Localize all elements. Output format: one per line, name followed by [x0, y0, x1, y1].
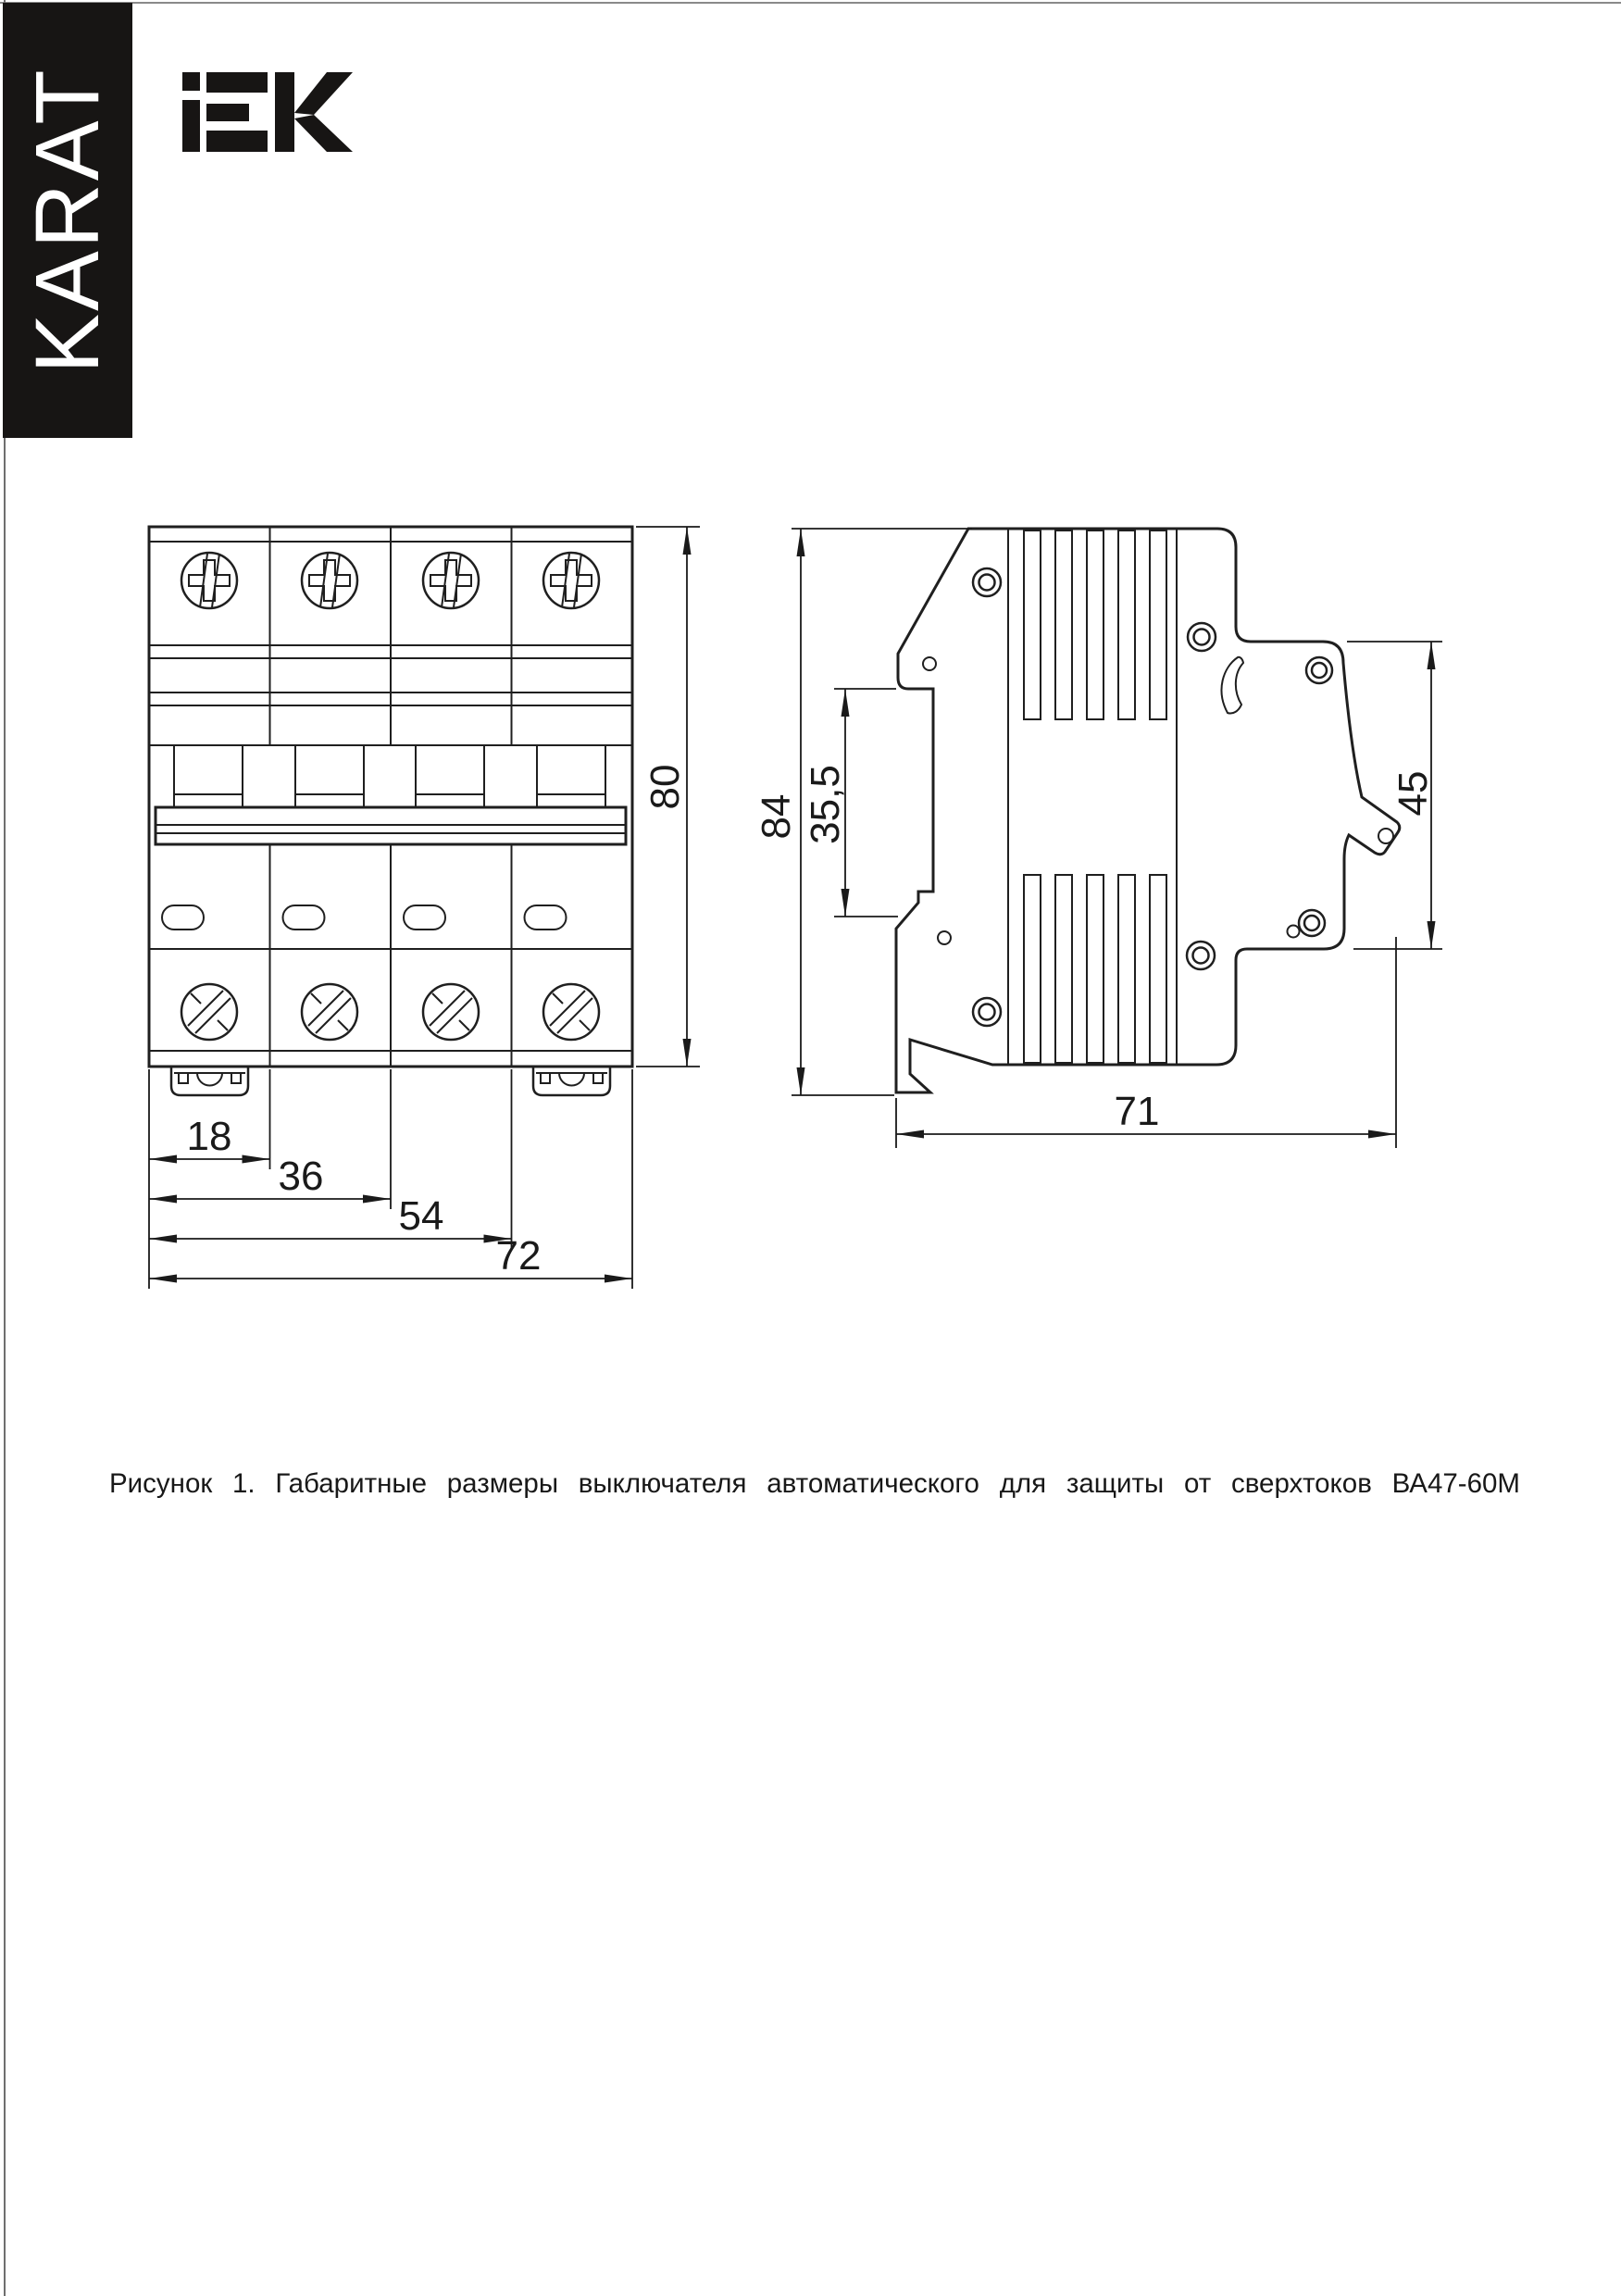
- screw-phillips: [302, 553, 357, 608]
- rivet-bosses: [973, 568, 1332, 1026]
- screw-phillips: [181, 553, 237, 608]
- din-clip: [533, 1067, 610, 1095]
- dim-label-36: 36: [279, 1154, 324, 1199]
- toggle-handles: [174, 745, 605, 807]
- screw-combi: [423, 984, 479, 1040]
- screw-combi: [302, 984, 357, 1040]
- front-module-dividers: [270, 527, 512, 1067]
- page: KARAT: [0, 0, 1621, 2296]
- screw-combi: [543, 984, 599, 1040]
- front-view: [149, 527, 632, 1095]
- curved-slot: [1222, 657, 1243, 714]
- dim-label-35-5: 35,5: [803, 765, 848, 844]
- dim-label-45: 45: [1390, 771, 1436, 817]
- dim-label-72: 72: [496, 1233, 542, 1279]
- screw-combi: [181, 984, 237, 1040]
- vent-slots-top: [1024, 530, 1166, 719]
- fin-plate-edges: [1008, 529, 1177, 1065]
- dim-label-54: 54: [399, 1193, 444, 1239]
- dim-label-71: 71: [1115, 1089, 1160, 1134]
- screw-phillips: [543, 553, 599, 608]
- dim-label-80: 80: [642, 765, 688, 810]
- figure-caption: Рисунок 1. Габаритные размеры выключател…: [109, 1468, 1520, 1500]
- front-dimensions: 18 36 54 72 80: [149, 527, 700, 1289]
- dim-label-84: 84: [754, 794, 799, 840]
- dim-label-18: 18: [187, 1114, 232, 1159]
- small-holes: [923, 657, 1393, 944]
- side-body-outline: [896, 529, 1400, 1092]
- screw-phillips: [423, 553, 479, 608]
- side-view: [896, 529, 1400, 1092]
- label-window-slots: [162, 905, 567, 930]
- din-clip: [171, 1067, 248, 1095]
- latch-pivot-hole: [1378, 829, 1393, 843]
- side-dimensions: 84 35,5 45 71: [754, 529, 1442, 1148]
- dimension-drawing: 18 36 54 72 80: [0, 0, 1621, 1389]
- vent-slots-bottom: [1024, 875, 1166, 1063]
- toggle-rail: [156, 807, 626, 844]
